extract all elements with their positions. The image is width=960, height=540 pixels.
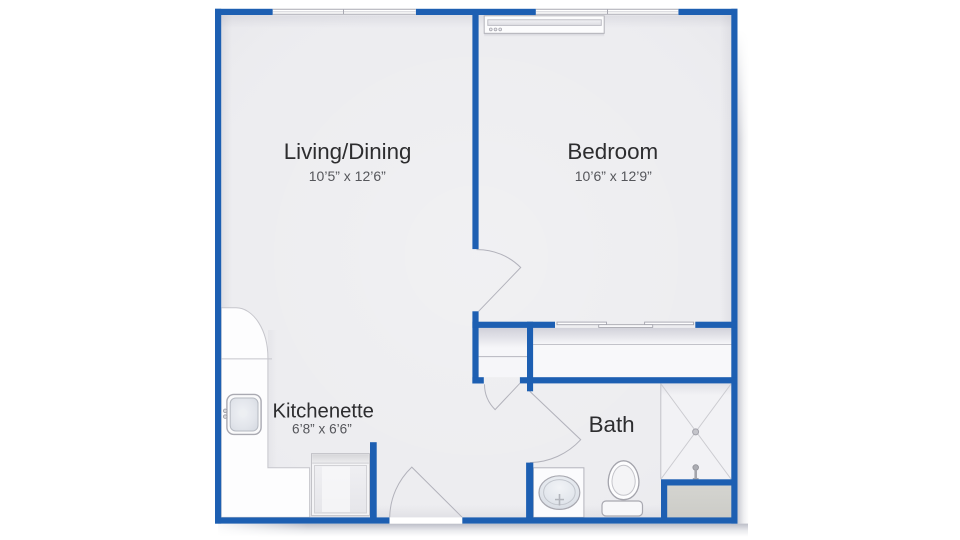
svg-text:10’5” x 12’6”: 10’5” x 12’6” <box>309 168 386 184</box>
svg-text:Bedroom: Bedroom <box>567 139 658 164</box>
svg-text:Living/Dining: Living/Dining <box>284 139 412 164</box>
svg-text:Kitchenette: Kitchenette <box>272 401 373 423</box>
svg-text:Bath: Bath <box>589 412 635 437</box>
svg-text:10’6” x 12’9”: 10’6” x 12’9” <box>575 168 652 184</box>
svg-text:6’8” x 6’6”: 6’8” x 6’6” <box>292 422 352 437</box>
